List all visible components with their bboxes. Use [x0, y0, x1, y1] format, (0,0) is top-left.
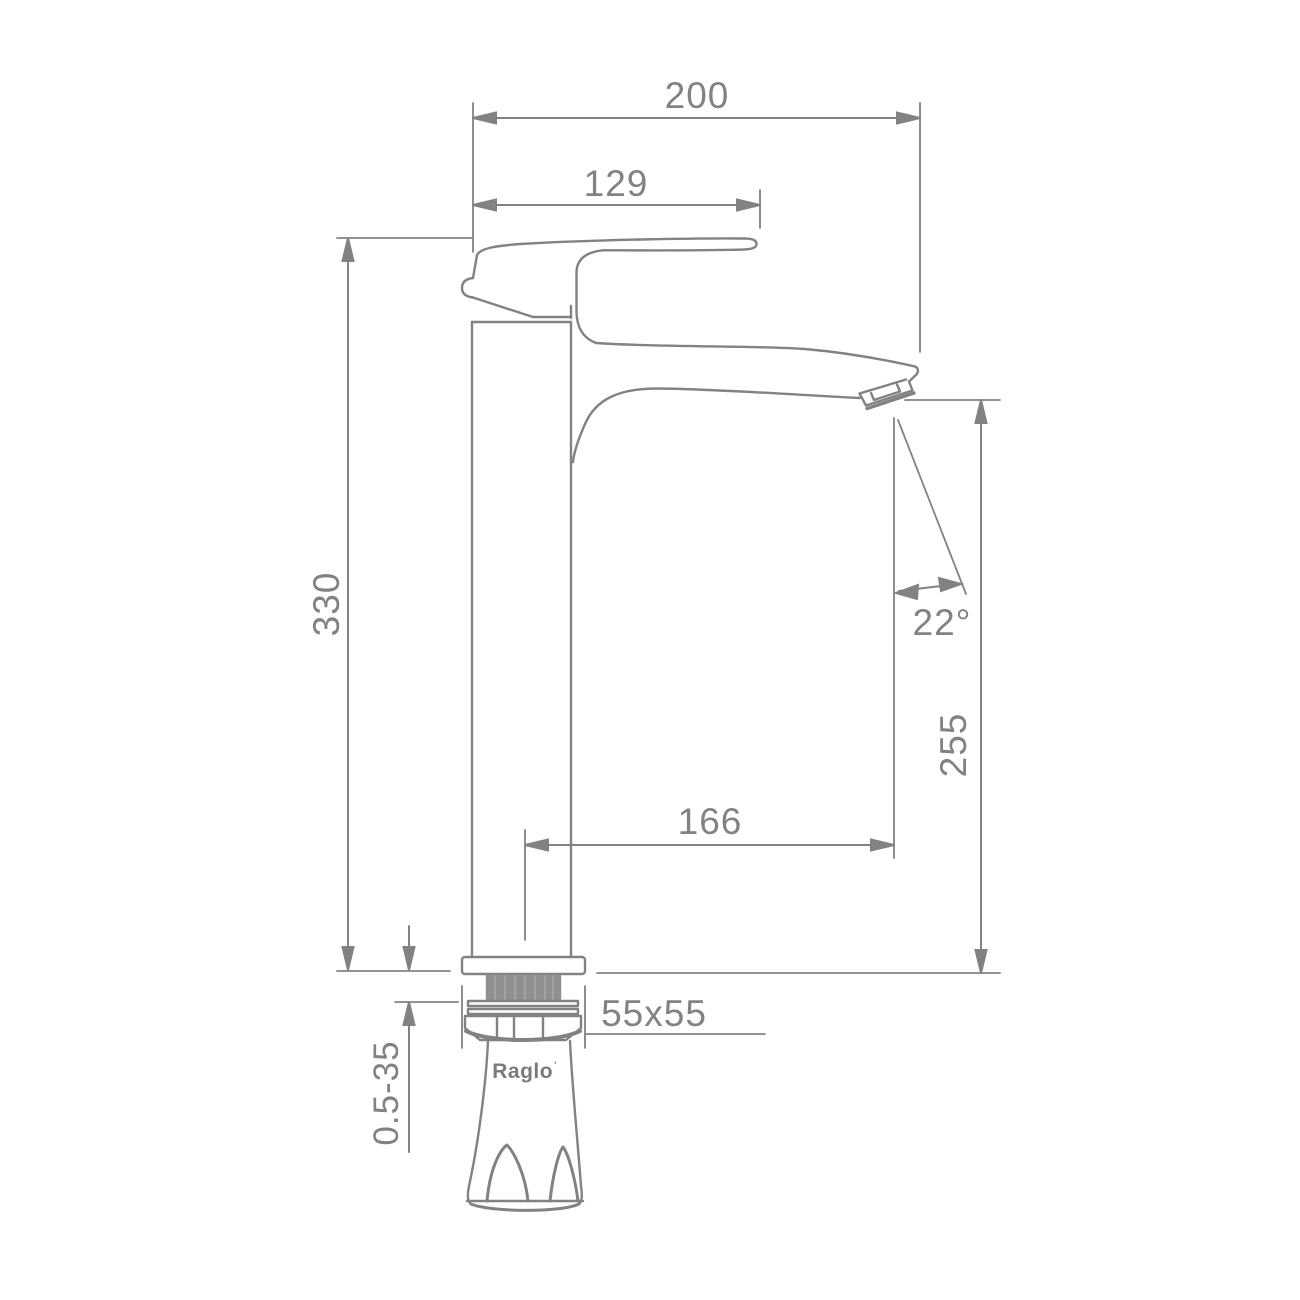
drawing-canvas: 200 129 330 255 22° 166 55x55 0.5-35 Rag… [0, 0, 1300, 1300]
dim-166-arrow-right [871, 840, 894, 851]
faucet-technical-drawing [0, 0, 1300, 1300]
handle-wedge-bottom [473, 298, 571, 318]
dim-0535-arrow-up [404, 1002, 415, 1025]
dim-deck-thickness-label: 0.5-35 [367, 1040, 407, 1145]
hose-cutout-left [487, 1145, 528, 1201]
washer-upper [468, 1001, 578, 1006]
handle-ball-detail [462, 278, 473, 298]
washer-lower [468, 1009, 578, 1014]
locknut-rim [466, 1031, 580, 1040]
dim-angle-arrow-right [939, 578, 961, 591]
dim-200-arrow-right [897, 113, 920, 124]
spout-top-edge [596, 343, 915, 367]
ext-angle-slant [898, 420, 966, 594]
spout-underside [573, 389, 860, 463]
brand-logo: Raglo' [492, 1060, 555, 1084]
brand-logo-text: Raglo [492, 1060, 553, 1083]
hose-cutout-right [550, 1147, 578, 1201]
dim-spout-reach-label: 166 [678, 801, 743, 843]
extension-lines [337, 103, 1000, 1048]
dim-overall-height-label: 330 [306, 572, 348, 637]
dim-129-arrow-right [737, 200, 760, 211]
base-plate [462, 957, 585, 974]
skirt-left-edge [468, 1041, 488, 1204]
thread-section [487, 976, 560, 999]
handle-wedge [473, 255, 477, 278]
dim-129-arrow-left [473, 200, 496, 211]
dim-angle-arrow-left [896, 585, 918, 599]
dim-spout-outlet-height-label: 255 [933, 713, 975, 778]
dim-0535-arrow-down [404, 947, 415, 970]
handle-lever [477, 238, 757, 255]
skirt-bottom-rim [471, 1204, 579, 1210]
dim-overall-depth-label: 200 [665, 75, 730, 117]
dim-handle-length-label: 129 [584, 163, 649, 205]
dim-255-arrow-top [976, 400, 987, 423]
dim-255-arrow-bottom [976, 950, 987, 973]
handle-hub [577, 250, 604, 343]
dim-200-arrow-left [473, 113, 496, 124]
spout-end-face [909, 367, 918, 382]
dim-spout-angle-label: 22° [913, 602, 972, 644]
dim-330-arrow-bottom [343, 947, 354, 970]
skirt-right-edge [570, 1041, 582, 1204]
dim-base-footprint-label: 55x55 [601, 993, 707, 1035]
locknut-facets [497, 1016, 543, 1040]
dim-166-arrow-left [525, 840, 548, 851]
dim-330-arrow-top [343, 238, 354, 261]
